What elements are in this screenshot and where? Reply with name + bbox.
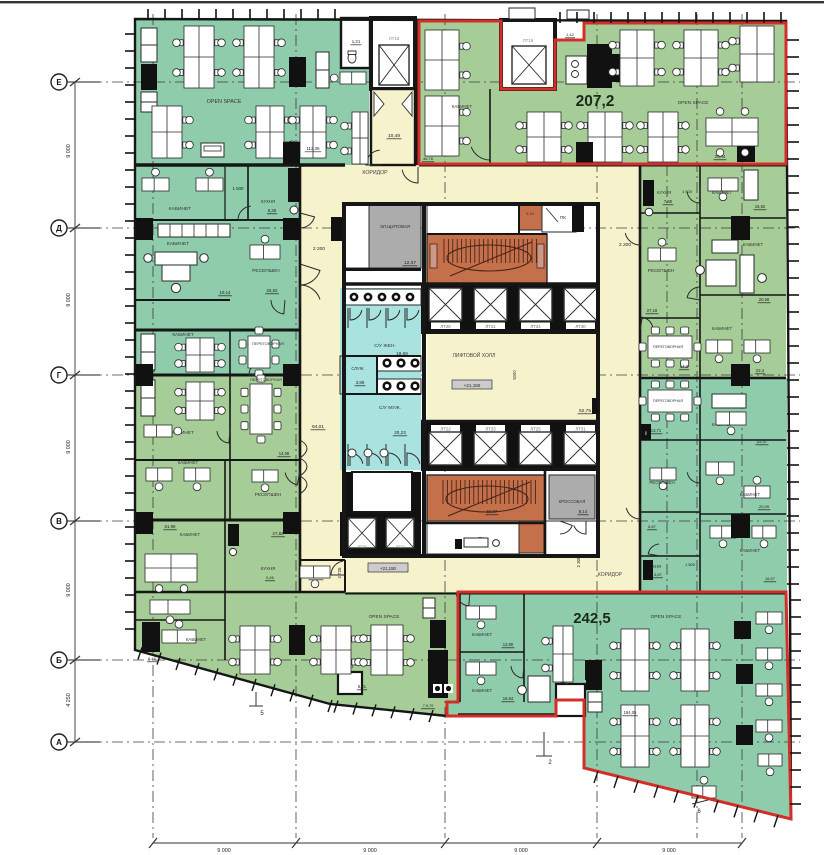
- svg-text:КРОССОВАЯ: КРОССОВАЯ: [559, 499, 586, 504]
- svg-text:КАБИНЕТ: КАБИНЕТ: [186, 637, 207, 642]
- svg-text:50,67: 50,67: [487, 509, 498, 514]
- svg-text:КОРИДОР: КОРИДОР: [598, 572, 623, 578]
- svg-text:16,64: 16,64: [503, 696, 514, 701]
- svg-text:20,99: 20,99: [759, 504, 770, 509]
- svg-text:20,56: 20,56: [759, 297, 770, 302]
- svg-text:КАБИНЕТ: КАБИНЕТ: [169, 206, 191, 212]
- svg-text:КУХНЯ: КУХНЯ: [657, 190, 671, 195]
- svg-text:94,01: 94,01: [312, 424, 324, 430]
- svg-text:2 300: 2 300: [576, 556, 581, 568]
- svg-text:ПК: ПК: [560, 215, 566, 220]
- svg-text:ЛТ22: ЛТ22: [440, 427, 451, 432]
- svg-text:25,62: 25,62: [267, 288, 279, 293]
- svg-text:OPEN SPACE: OPEN SPACE: [678, 100, 709, 106]
- svg-text:КАБИНЕТ: КАБИНЕТ: [472, 688, 493, 693]
- svg-text:9 000: 9 000: [66, 293, 72, 307]
- svg-text:4 250: 4 250: [66, 693, 72, 707]
- svg-text:13,71: 13,71: [651, 428, 662, 433]
- svg-text:5000: 5000: [512, 370, 517, 380]
- svg-text:Д: Д: [56, 224, 62, 233]
- svg-text:5,31: 5,31: [358, 684, 367, 689]
- svg-text:7,9,70: 7,9,70: [423, 704, 434, 708]
- svg-text:+21,150: +21,150: [380, 566, 397, 571]
- svg-text:КАБИНЕТ: КАБИНЕТ: [167, 241, 189, 247]
- svg-text:А: А: [56, 738, 62, 747]
- svg-text:9 000: 9 000: [66, 440, 72, 454]
- svg-text:27,18: 27,18: [647, 308, 658, 313]
- svg-text:61,99: 61,99: [165, 524, 177, 529]
- svg-text:2 200: 2 200: [313, 246, 325, 252]
- svg-text:КОРИДОР: КОРИДОР: [362, 170, 388, 176]
- svg-text:Е: Е: [56, 78, 62, 87]
- svg-text:ЛТ20: ЛТ20: [440, 324, 451, 329]
- svg-text:КАБИНЕТ: КАБИНЕТ: [472, 632, 493, 637]
- svg-text:7,86: 7,86: [664, 199, 673, 204]
- svg-text:10,48: 10,48: [388, 133, 400, 139]
- svg-text:20,23: 20,23: [394, 430, 406, 435]
- svg-text:12,37: 12,37: [404, 260, 416, 266]
- svg-text:9 000: 9 000: [662, 848, 676, 854]
- svg-text:2 200: 2 200: [619, 242, 631, 248]
- svg-text:ПЕРЕГОВОРНАЯ: ПЕРЕГОВОРНАЯ: [252, 341, 284, 346]
- svg-text:КАБИНЕТ: КАБИНЕТ: [712, 326, 733, 331]
- svg-text:КАБИНЕТ: КАБИНЕТ: [172, 332, 193, 337]
- svg-text:РЕСЕПШЕН: РЕСЕПШЕН: [648, 268, 674, 273]
- svg-text:25,44: 25,44: [715, 154, 726, 159]
- svg-text:207,2: 207,2: [576, 93, 615, 110]
- svg-text:OPEN SPACE: OPEN SPACE: [369, 614, 400, 620]
- svg-text:112,35: 112,35: [306, 146, 320, 151]
- svg-text:КАБИНЕТ: КАБИНЕТ: [178, 460, 199, 465]
- svg-text:16,57: 16,57: [765, 576, 776, 581]
- svg-text:ЛТ30: ЛТ30: [575, 324, 586, 329]
- svg-text:РЕСЕПШЕН: РЕСЕПШЕН: [649, 480, 674, 485]
- svg-text:8,14: 8,14: [579, 509, 588, 514]
- svg-text:ЛТ26: ЛТ26: [357, 544, 367, 549]
- svg-text:9 000: 9 000: [66, 144, 72, 158]
- svg-text:КАБИНЕТ: КАБИНЕТ: [743, 242, 764, 247]
- svg-text:8,38: 8,38: [268, 208, 277, 213]
- svg-text:ПЕРЕГОВОРНАЯ: ПЕРЕГОВОРНАЯ: [653, 399, 683, 403]
- svg-text:ЛТ27: ЛТ27: [395, 544, 405, 549]
- svg-text:6,46: 6,46: [148, 656, 157, 661]
- svg-text:ЛТ21: ЛТ21: [485, 324, 496, 329]
- svg-text:КАБИНЕТ: КАБИНЕТ: [180, 532, 201, 537]
- svg-text:В: В: [56, 517, 62, 526]
- svg-text:СЛУЖ.: СЛУЖ.: [351, 366, 364, 371]
- svg-text:9 000: 9 000: [66, 583, 72, 597]
- svg-text:РЕСЕПШЕН: РЕСЕПШЕН: [255, 492, 281, 497]
- svg-text:РЕСЕПШЕН: РЕСЕПШЕН: [252, 268, 280, 274]
- svg-text:ЭЛ.ЩИТОВАЯ: ЭЛ.ЩИТОВАЯ: [380, 224, 411, 229]
- svg-text:OPEN SPACE: OPEN SPACE: [207, 99, 242, 105]
- svg-text:ЛТ25: ЛТ25: [530, 427, 541, 432]
- svg-text:Б: Б: [56, 656, 62, 665]
- svg-text:1 500: 1 500: [685, 562, 696, 567]
- svg-text:ЛТ31: ЛТ31: [575, 427, 586, 432]
- svg-text:OPEN SPACE: OPEN SPACE: [651, 614, 682, 620]
- svg-text:+21,150: +21,150: [464, 383, 481, 388]
- svg-text:1 500: 1 500: [233, 186, 245, 191]
- svg-text:27,82: 27,82: [273, 531, 285, 536]
- svg-text:164,05: 164,05: [624, 710, 637, 715]
- svg-text:КАБИНЕТ: КАБИНЕТ: [740, 548, 761, 553]
- svg-text:16,62: 16,62: [755, 204, 766, 209]
- svg-text:1,21: 1,21: [352, 39, 361, 44]
- svg-text:13,90: 13,90: [503, 642, 514, 647]
- svg-text:14,3: 14,3: [680, 364, 689, 369]
- svg-text:ЛТ23: ЛТ23: [485, 427, 496, 432]
- svg-text:22,4: 22,4: [756, 368, 765, 373]
- svg-text:С/У ЖЕН.: С/У ЖЕН.: [374, 343, 396, 349]
- svg-text:Г: Г: [57, 371, 62, 380]
- svg-text:ПЕРЕГОВОРНАЯ: ПЕРЕГОВОРНАЯ: [653, 345, 683, 349]
- svg-text:9 000: 9 000: [217, 848, 231, 854]
- svg-text:ЛТ24: ЛТ24: [530, 324, 541, 329]
- svg-text:0,46: 0,46: [266, 575, 275, 580]
- svg-text:КАБИНЕТ: КАБИНЕТ: [452, 104, 473, 109]
- svg-text:КАБИНЕТ: КАБИНЕТ: [712, 190, 733, 195]
- svg-text:3,89: 3,89: [356, 380, 365, 385]
- svg-text:ЛИФТОВОЙ ХОЛЛ: ЛИФТОВОЙ ХОЛЛ: [453, 351, 496, 359]
- svg-text:14,08: 14,08: [279, 451, 290, 456]
- svg-text:22,47: 22,47: [757, 439, 768, 444]
- svg-text:6,87: 6,87: [654, 572, 663, 577]
- svg-text:ЛТ19: ЛТ19: [523, 38, 534, 43]
- svg-text:КУХНЯ: КУХНЯ: [261, 566, 276, 571]
- svg-text:242,5: 242,5: [573, 610, 611, 627]
- svg-text:19,14: 19,14: [220, 290, 232, 295]
- svg-text:46,78: 46,78: [423, 156, 434, 161]
- svg-text:9 000: 9 000: [514, 848, 528, 854]
- svg-text:ПЕРЕГОВОРНАЯ: ПЕРЕГОВОРНАЯ: [250, 377, 282, 382]
- svg-text:КУХНЯ: КУХНЯ: [261, 199, 275, 204]
- svg-text:52,75: 52,75: [579, 408, 591, 414]
- svg-text:КАБИНЕТ: КАБИНЕТ: [740, 492, 761, 497]
- svg-text:2 725: 2 725: [337, 567, 342, 579]
- svg-text:6,87: 6,87: [648, 524, 657, 529]
- svg-text:1,42: 1,42: [566, 32, 575, 37]
- svg-text:5,19: 5,19: [526, 212, 533, 216]
- svg-text:ЛТ18: ЛТ18: [389, 36, 400, 41]
- svg-text:9 000: 9 000: [363, 848, 377, 854]
- svg-text:1 500: 1 500: [682, 189, 693, 194]
- svg-text:С/У МУЖ.: С/У МУЖ.: [379, 405, 401, 411]
